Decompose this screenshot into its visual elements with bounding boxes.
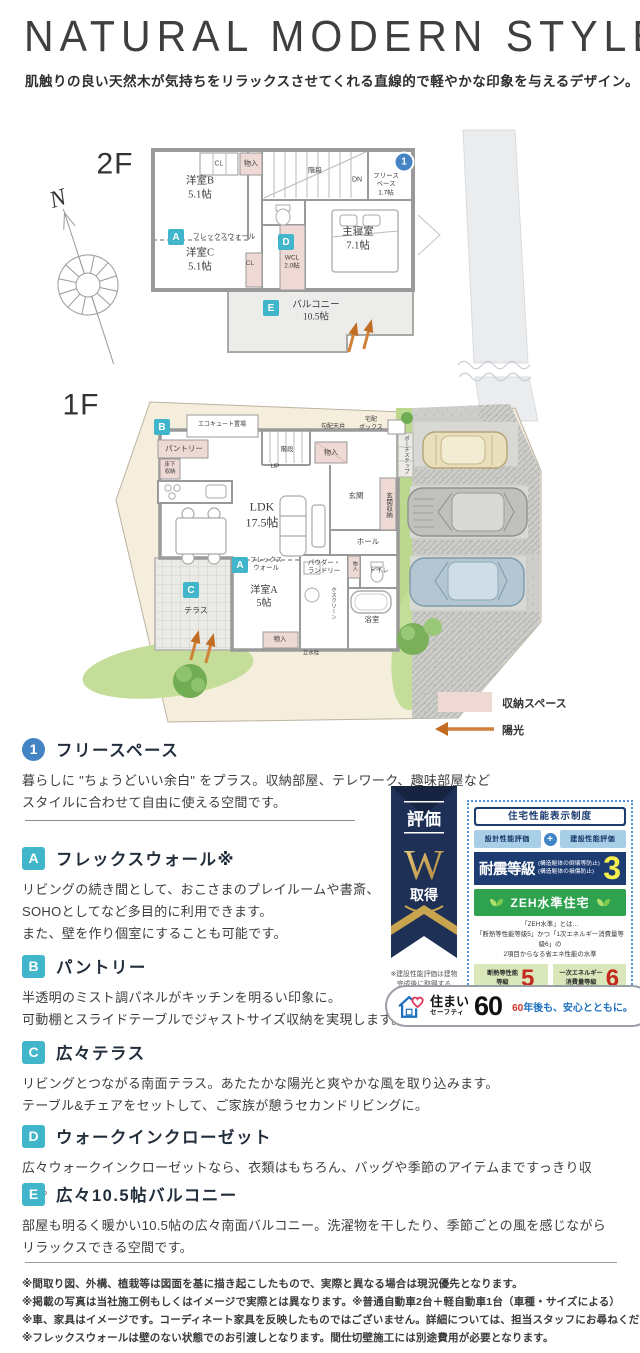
- label-stairs-1f: 階段: [281, 446, 294, 454]
- house-heart-icon: [397, 993, 425, 1020]
- section-divider: [25, 820, 355, 821]
- ribbon-shutoku: 取得: [410, 887, 438, 903]
- footnote-4: ※フレックスウォールは壁のない状態でのお引渡しとなります。間仕切壁施工には別途費…: [22, 1330, 554, 1345]
- safety-slogan: 60年後も、安心とともに。: [512, 999, 633, 1014]
- safety-60: 60: [474, 991, 502, 1022]
- label-monoire-2f: 物入: [244, 159, 258, 168]
- label-terrace: テラス: [184, 606, 208, 616]
- label-stairs-2f: 階段: [308, 166, 322, 175]
- seismic-grade: 3: [603, 855, 621, 882]
- design-eval-pill: 設計性能評価: [474, 830, 541, 848]
- zeh-label: ZEH水準住宅: [510, 894, 589, 911]
- feature-terrace: C 広々テラス リビングとつながる南面テラス。あたたかな陽光と爽やかな風を取り込…: [22, 1040, 618, 1117]
- legend-storage-label: 収納スペース: [502, 695, 567, 711]
- feature-marker-b: B: [22, 955, 45, 978]
- label-genkan-shuno: 玄関収納: [384, 492, 391, 518]
- performance-panel: 住宅性能表示制度 設計性能評価 + 建設性能評価 耐震等級 (構造躯体の倒壊等防…: [467, 800, 633, 1000]
- sofa: [280, 496, 325, 556]
- feature-title-d: ウォークインクローゼット: [56, 1124, 272, 1148]
- feature-title-1: フリースペース: [56, 737, 179, 761]
- footnote-1: ※間取り図、外構、植栽等は図面を基に描き起こしたもので、実際と異なる場合は現況優…: [22, 1276, 523, 1291]
- north-label: N: [45, 184, 71, 215]
- delivery-box: [388, 420, 405, 434]
- label-monoire-bottom: 物入: [274, 636, 287, 644]
- safety60-badge: 住まい セーフティ 60 60年後も、安心とともに。: [385, 985, 640, 1027]
- leaf-icon: [489, 897, 504, 908]
- ribbon-w: W: [404, 843, 444, 889]
- label-freespace: フリース ペース 1.7帖: [373, 172, 399, 197]
- flyer-page: NATURAL MODERN STYLE 肌触りの良い天然木が気持ちをリラックス…: [0, 0, 640, 1353]
- label-genkan: 玄関: [349, 491, 364, 501]
- label-powder: パウダー・ ランドリー: [308, 560, 341, 577]
- label-monoire-1f-top: 物入: [324, 448, 338, 457]
- feature-marker-e: E: [22, 1183, 45, 1206]
- label-monoire-mid: 物入: [351, 561, 357, 571]
- seismic-sub2: (構造躯体の損傷防止): [538, 869, 600, 877]
- marker-1-plan: 1: [396, 154, 413, 171]
- marker-c-1f: C: [183, 582, 199, 598]
- label-takuhai: 宅配 ボックス: [359, 417, 383, 433]
- label-pantry: パントリー: [165, 444, 203, 454]
- feature-title-c: 広々テラス: [56, 1040, 146, 1064]
- zeh-note-2: 「断熱等性能等級5」かつ「1次エネルギー消費量等級6」の: [474, 930, 626, 950]
- safety-label: セーフティ: [430, 1010, 469, 1017]
- label-hall: ホール: [357, 537, 380, 547]
- label-up: UP: [270, 463, 279, 471]
- marker-d-2f: D: [278, 234, 294, 250]
- label-bathroom: 浴室: [365, 615, 380, 625]
- feature-marker-c: C: [22, 1041, 45, 1064]
- construction-eval-pill: 建設性能評価: [560, 830, 627, 848]
- feature-title-e: 広々10.5帖バルコニー: [56, 1182, 238, 1206]
- feature-balcony: E 広々10.5帖バルコニー 部屋も明るく暖かい10.5帖の広々南面バルコニー。…: [22, 1182, 618, 1259]
- label-flexwall-1f: フレックス ウォール: [250, 557, 282, 574]
- feature-title-b: パントリー: [56, 954, 147, 978]
- feature-marker-d: D: [22, 1125, 45, 1148]
- label-wcl: WCL 2.0帖: [284, 255, 300, 272]
- feature-body-c: リビングとつながる南面テラス。あたたかな陽光と爽やかな風を取り込みます。 テーブ…: [22, 1073, 618, 1117]
- floor-label-1f: 1F: [62, 386, 99, 425]
- terrace: [155, 558, 232, 650]
- label-yoshitsu-c: 洋室C 5.1帖: [186, 246, 214, 273]
- car-blue: [410, 558, 524, 606]
- marker-a-2f: A: [168, 229, 184, 245]
- label-hosuclean: ホスクリーン: [330, 587, 336, 620]
- zeh-bar: ZEH水準住宅: [474, 889, 626, 916]
- car-gray: [408, 488, 527, 536]
- label-toilet: トイレ: [369, 567, 389, 575]
- feature-title-a: フレックスウォール※: [56, 846, 235, 870]
- seismic-grade-box: 耐震等級 (構造躯体の倒壊等防止) (構造躯体の損傷防止) 3: [474, 852, 626, 885]
- label-cl-top: CL: [215, 159, 224, 168]
- page-subtitle: 肌触りの良い天然木が気持ちをリラックスさせてくれる直線的で軽やかな印象を与えるデ…: [25, 70, 639, 90]
- marker-e-2f: E: [263, 300, 279, 316]
- award-ribbon: 評価 W 取得: [391, 786, 457, 966]
- footer-divider: [25, 1262, 617, 1263]
- compass: N: [27, 177, 142, 373]
- label-yukashita: 床下 収納: [164, 462, 175, 476]
- zeh-note-3: 2項目からなる省エネ性能の水準: [474, 950, 626, 960]
- legend-sunlight-label: 陽光: [502, 722, 524, 738]
- label-rissuisen: 立水栓: [303, 650, 320, 657]
- label-ecocute: エコキュート置場: [198, 422, 246, 430]
- seismic-label: 耐震等級: [479, 858, 535, 879]
- slogan-num: 60: [512, 1003, 523, 1014]
- floor-label-2f: 2F: [96, 145, 133, 184]
- sumai-label: 住まい: [430, 995, 469, 1008]
- car-beige: [423, 432, 507, 468]
- label-shushinshitsu: 主寝室 7.1帖: [342, 225, 374, 252]
- certification-block: 評価 W 取得 ※建設性能評価は建物 完成後に取得する 住宅性能表示制度 設計性…: [385, 786, 633, 1028]
- footnote-3: ※車、家具はイメージです。コーディネート家具を反映したものではございません。詳細…: [22, 1312, 640, 1327]
- feature-marker-a: A: [22, 847, 45, 870]
- label-kobai-tenjo: 勾配天井: [321, 424, 345, 432]
- road-strip: [458, 130, 538, 421]
- feature-marker-1: 1: [22, 738, 45, 761]
- leaf-icon: [596, 897, 611, 908]
- label-cl-mid: CL: [246, 260, 254, 268]
- legend-storage-swatch: [438, 692, 492, 712]
- feature-body-e: 部屋も明るく暖かい10.5帖の広々南面バルコニー。洗濯物を干したり、季節ごとの風…: [22, 1215, 618, 1259]
- legend-sun-arrow: [435, 722, 494, 736]
- slogan-text: 年後も、安心とともに。: [523, 1003, 633, 1014]
- floorplan-scene: N: [0, 125, 640, 737]
- system-title-frame: 住宅性能表示制度: [474, 807, 626, 826]
- label-yoshitsu-b: 洋室B 5.1帖: [186, 174, 214, 201]
- marker-a-1f: A: [232, 557, 248, 573]
- marker-b-1f: B: [154, 419, 170, 435]
- label-flexwall-2f: フレックスウォール: [193, 232, 256, 241]
- zeh-note-1: 「ZEH水準」とは…: [474, 920, 626, 930]
- label-ldk: LDK 17.5帖: [245, 499, 278, 530]
- label-balcony: バルコニー 10.5帖: [292, 300, 339, 325]
- page-title: NATURAL MODERN STYLE: [24, 12, 640, 62]
- plus-icon: +: [544, 833, 557, 846]
- ribbon-hyoka: 評価: [407, 809, 441, 829]
- footnote-2: ※掲載の写真は当社施工例もしくはイメージで実際とは異なります。※普通自動車2台＋…: [22, 1294, 620, 1309]
- label-porch-step: ポーチステップ: [403, 436, 409, 475]
- label-dn: DN: [352, 175, 362, 184]
- system-title: 住宅性能表示制度: [476, 809, 624, 824]
- label-yoshitsu-a: 洋室A 5帖: [250, 584, 277, 610]
- seismic-sub1: (構造躯体の倒壊等防止): [538, 861, 600, 869]
